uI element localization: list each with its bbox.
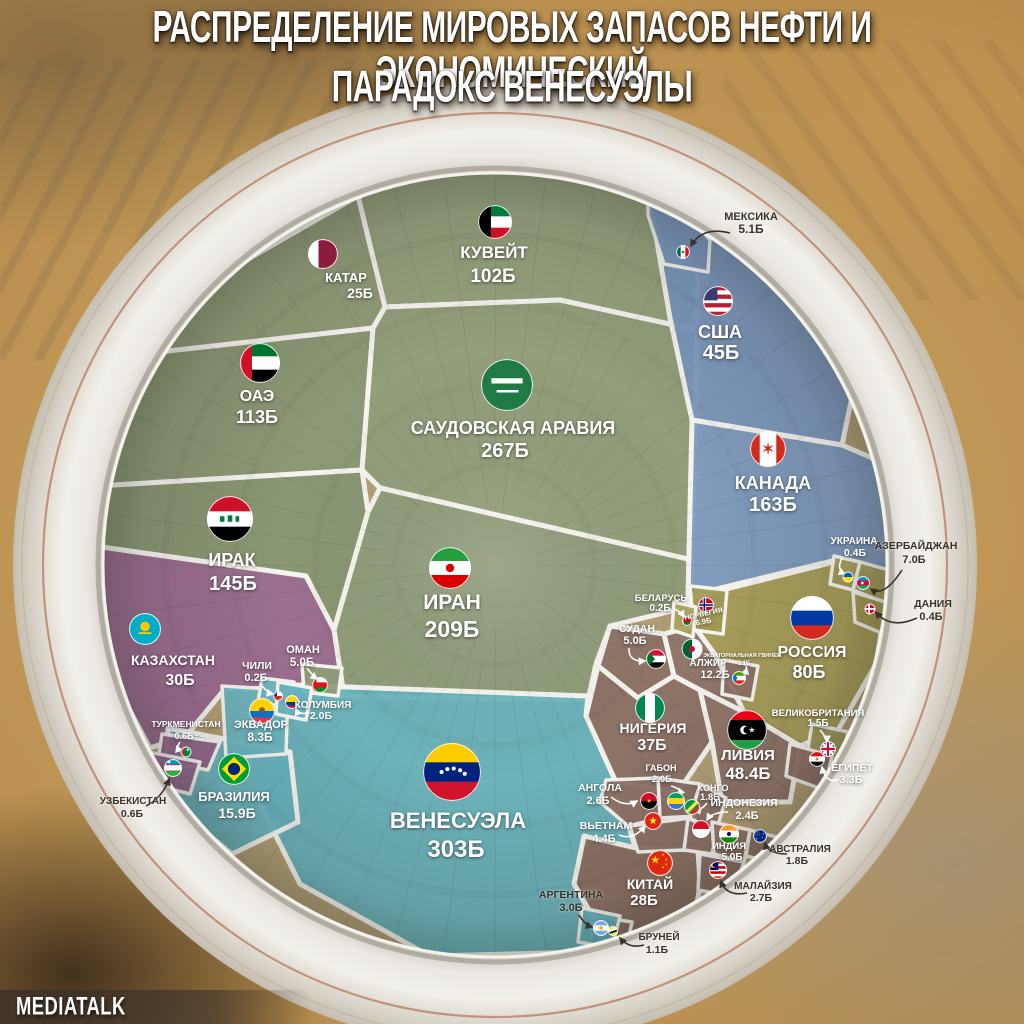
brazil-value-label: 15.9Б (218, 805, 255, 821)
equatorial_guinea-value-label: 1.1Б (738, 661, 751, 667)
australia-name-label: АВСТРАЛИЯ (769, 844, 831, 855)
australia-flag-icon: ★★★ (753, 829, 767, 843)
ukraine-value-label: 0.4Б (844, 547, 867, 559)
venezuela-name-label: ВЕНЕСУЭЛА (390, 808, 526, 833)
qatar-name-label: КАТАР (325, 270, 367, 285)
brazil-name-label: БРАЗИЛИЯ (198, 789, 270, 804)
svg-text:✶: ✶ (760, 439, 775, 459)
gabon-value-label: 2.0Б (652, 774, 672, 785)
brunei-name-label: БРУНЕЙ (638, 930, 679, 943)
svg-text:★: ★ (762, 832, 764, 835)
reserves-treemap: ✶★✶★★★★★★★★★★КУВЕЙТ102БКАТАР25БОАЭ113БСА… (0, 0, 1024, 1024)
brunei-flag-icon (608, 926, 618, 936)
kazakhstan-flag-icon (129, 613, 161, 645)
iraq-name-label: ИРАК (208, 550, 256, 570)
usa-flag-icon (703, 286, 733, 316)
ecuador-value-label: 8.3Б (247, 730, 273, 744)
libya-name-label: ЛИВИЯ (721, 747, 775, 764)
chile-name-label: ЧИЛИ (242, 660, 272, 672)
vietnam-flag-icon: ★ (644, 812, 662, 830)
saudi_arabia-value-label: 267Б (481, 440, 529, 462)
malaysia-value-label: 2.7Б (750, 892, 773, 904)
azerbaijan-name-label: АЗЕРБАЙДЖАН (875, 539, 958, 552)
argentina-value-label: 3.0Б (559, 902, 582, 914)
svg-text:★: ★ (762, 836, 764, 839)
kazakhstan-name-label: КАЗАХСТАН (131, 652, 215, 668)
vietnam-value-label: 4.4Б (592, 833, 615, 845)
iran-value-label: 209Б (425, 616, 480, 642)
kuwait-value-label: 102Б (470, 266, 515, 287)
turkmenistan-flag-icon (181, 747, 192, 758)
belarus-value-label: 0.2Б (649, 603, 670, 614)
russia-name-label: РОССИЯ (777, 644, 846, 661)
brunei-value-label: 1.1Б (646, 944, 669, 956)
russia-value-label: 80Б (793, 662, 826, 682)
turkmenistan-value-label: 0.6Б (175, 731, 195, 741)
iran-name-label: ИРАН (423, 591, 481, 614)
malaysia-name-label: МАЛАЙЗИЯ (734, 879, 792, 892)
brazil-flag-icon (218, 753, 250, 785)
denmark-name-label: ДАНИЯ (914, 598, 952, 610)
oman-name-label: ОМАН (286, 644, 320, 656)
equatorial_guinea-name-label: ЭКВАТОРИАЛЬНАЯ ГВИНЕЯ (703, 653, 781, 659)
denmark-flag-icon (865, 604, 876, 615)
brand-label: MEDIATALK (16, 993, 126, 1022)
chile-flag-icon: ★ (273, 691, 283, 701)
malaysia-flag-icon (709, 861, 727, 879)
indonesia-name-label: ИНДОНЕЗИЯ (710, 797, 777, 809)
uzbekistan-name-label: УЗБЕКИСТАН (100, 796, 167, 807)
indonesia-value-label: 2.4Б (735, 810, 758, 822)
gabon-name-label: ГАБОН (645, 763, 676, 773)
svg-text:★: ★ (649, 816, 658, 827)
azerbaijan-value-label: 7.0Б (902, 554, 925, 566)
qatar-value-label: 25Б (347, 285, 373, 301)
india-value-label: 5.0Б (721, 852, 742, 863)
algeria-value-label: 12.2Б (700, 669, 729, 681)
australia-value-label: 1.8Б (786, 855, 809, 867)
vietnam-name-label: ВЬЕТНАМ (580, 820, 633, 832)
china-value-label: 28Б (630, 892, 658, 909)
angola-name-label: АНГОЛА (578, 782, 622, 794)
nigeria-name-label: НИГЕРИЯ (620, 720, 687, 736)
venezuela-value-label: 303Б (427, 836, 484, 863)
svg-text:✶: ✶ (646, 797, 652, 806)
svg-text:★: ★ (650, 854, 660, 866)
kazakhstan-value-label: 30Б (165, 672, 194, 689)
uzbekistan-value-label: 0.6Б (121, 808, 144, 820)
libya-value-label: 48.4Б (725, 764, 770, 783)
canada-value-label: 163Б (749, 494, 797, 516)
turkmenistan-name-label: ТУРКМЕНИСТАН (151, 719, 220, 729)
uk-value-label: 1.5Б (807, 718, 828, 729)
uae-value-label: 113Б (236, 407, 278, 427)
nigeria-value-label: 37Б (637, 737, 666, 754)
angola-value-label: 2.6Б (586, 795, 609, 807)
title-line-2: ПАРАДОКС ВЕНЕСУЭЛЫ (61, 65, 962, 110)
congo-flag-icon (684, 799, 700, 815)
kuwait-name-label: КУВЕЙТ (460, 243, 528, 262)
egypt-value-label: 3.3Б (839, 774, 862, 786)
china-flag-icon: ★★★★★ (647, 850, 673, 876)
canada-name-label: КАНАДА (735, 473, 811, 493)
saudi_arabia-flag-icon (481, 359, 533, 411)
algeria-name-label: АЛЖИР (689, 658, 727, 669)
sudan-name-label: СУДАН (619, 623, 655, 635)
oman-value-label: 5.0Б (290, 657, 314, 669)
chile-value-label: 0.2Б (244, 672, 267, 684)
iraq-value-label: 145Б (209, 573, 257, 595)
india-name-label: ИНДИЯ (712, 841, 746, 852)
denmark-value-label: 0.4Б (919, 611, 942, 623)
argentina-name-label: АРГЕНТИНА (539, 889, 604, 901)
saudi_arabia-name-label: САУДОВСКАЯ АРАВИЯ (411, 418, 616, 438)
mexico-value-label: 5.1Б (738, 222, 764, 236)
brand-bar: MEDIATALK (0, 990, 310, 1024)
ukraine-name-label: УКРАИНА (831, 536, 878, 547)
usa-name-label: США (698, 322, 742, 342)
infographic-canvas: ✶★✶★★★★★★★★★★КУВЕЙТ102БКАТАР25БОАЭ113БСА… (0, 0, 1024, 1024)
colombia-value-label: 2.0Б (310, 710, 333, 722)
svg-text:★: ★ (748, 726, 755, 735)
usa-value-label: 45Б (703, 342, 740, 364)
uae-name-label: ОАЭ (240, 388, 275, 405)
egypt-name-label: ЕГИПЕТ (831, 762, 873, 774)
china-name-label: КИТАЙ (627, 875, 673, 892)
sudan-value-label: 5.0Б (623, 635, 646, 647)
